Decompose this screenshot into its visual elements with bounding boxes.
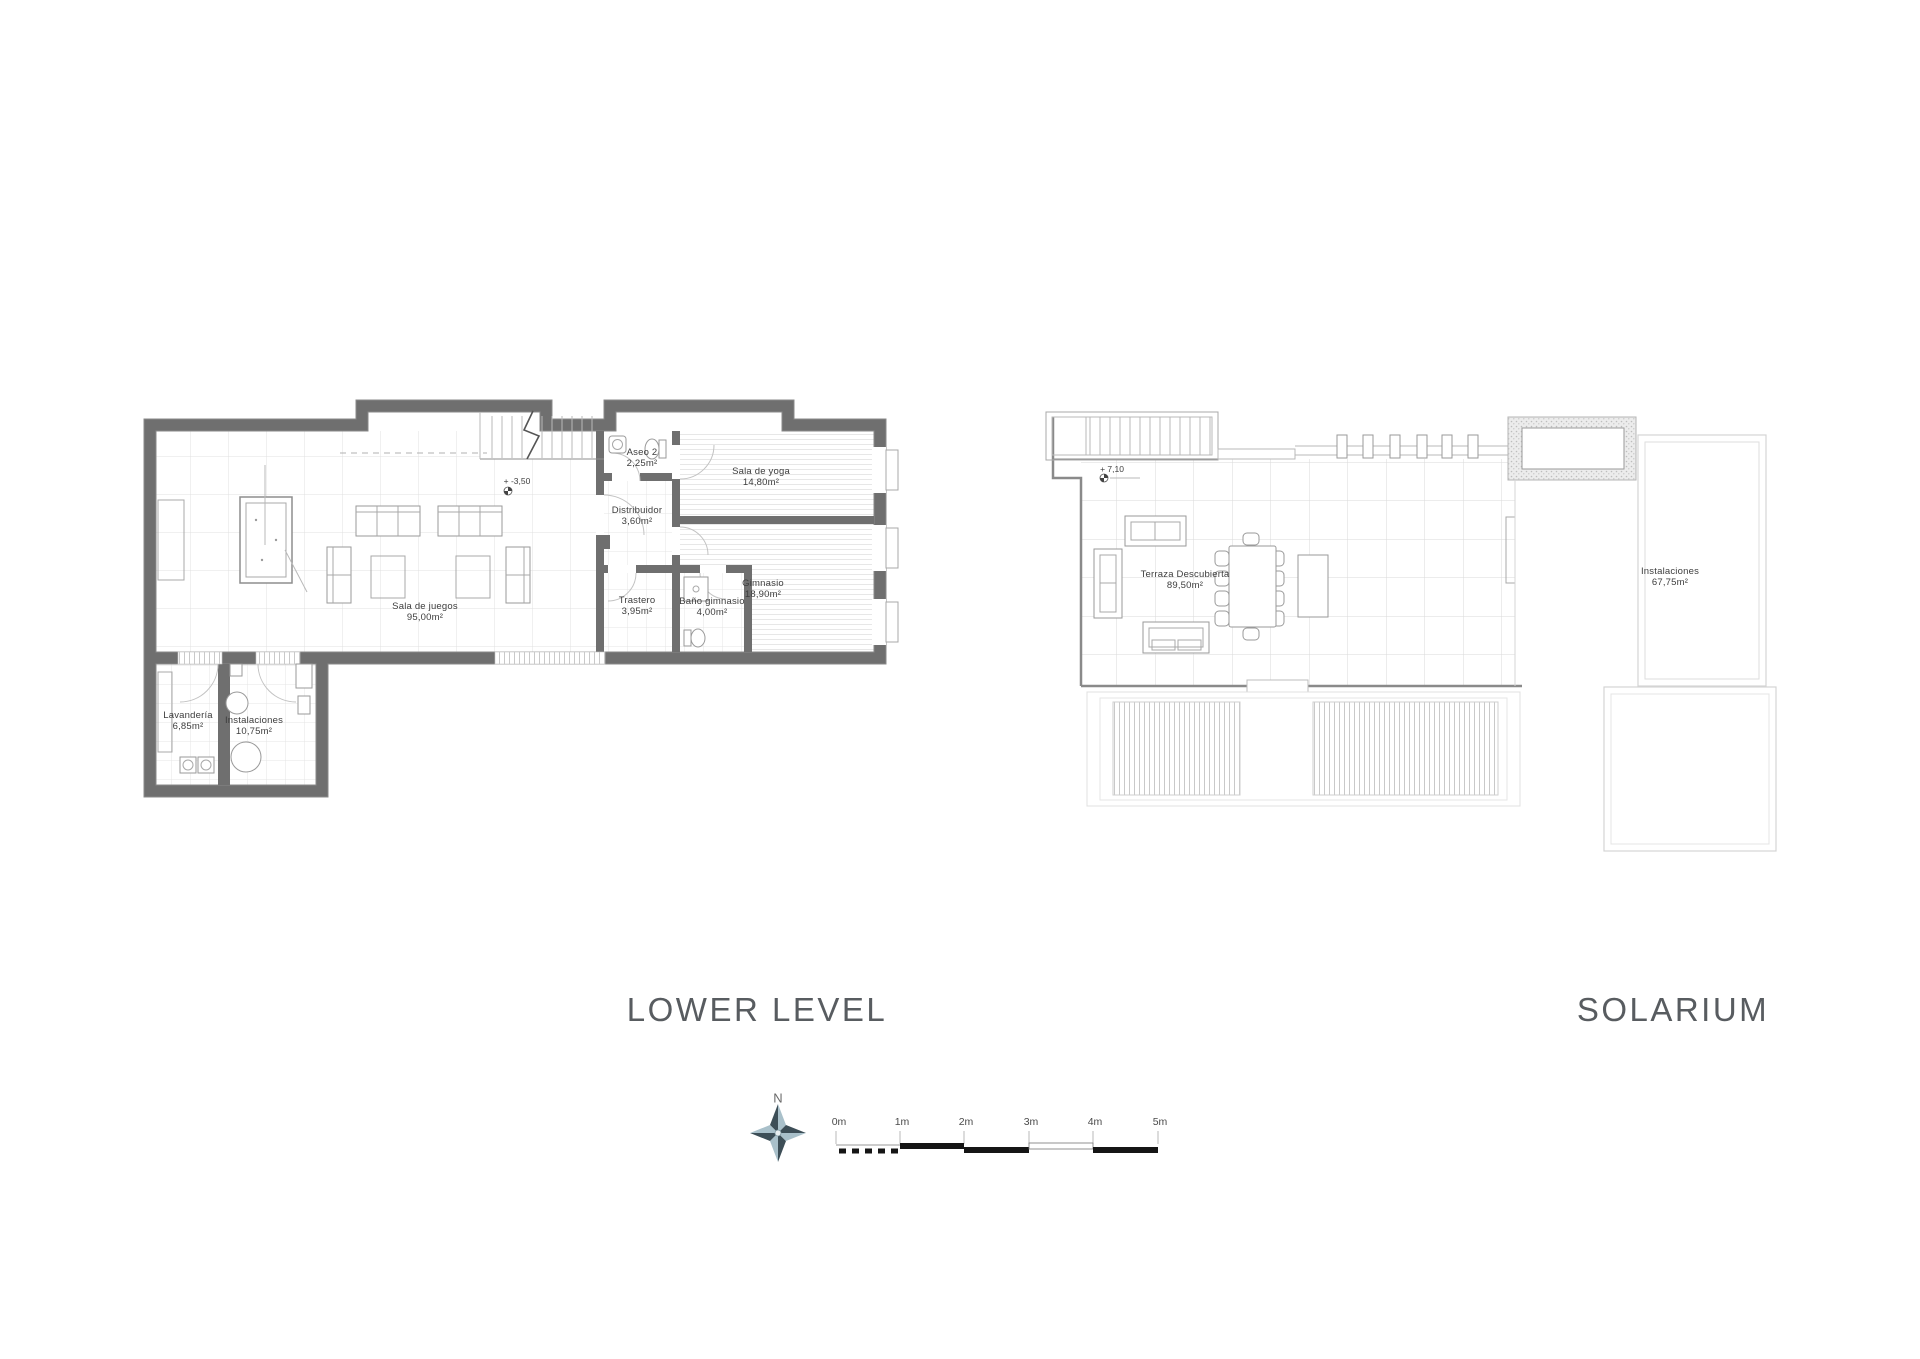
- room-label-instalaciones-lower: Instalaciones10,75m²: [225, 715, 283, 737]
- room-label-sala-de-juegos: Sala de juegos95,00m²: [392, 601, 458, 623]
- room-label-lavanderia: Lavandería6,85m²: [163, 710, 213, 732]
- floorplan-sheet: Aseo 22,25m² Sala de yoga14,80m² Distrib…: [0, 0, 1920, 1359]
- scale-tick-4m: 4m: [1088, 1116, 1103, 1128]
- lower-level-title: LOWER LEVEL: [627, 991, 887, 1029]
- room-label-bano-gimnasio: Baño gimnasio4,00m²: [679, 596, 744, 618]
- room-label-sala-de-yoga: Sala de yoga14,80m²: [732, 466, 790, 488]
- scale-tick-5m: 5m: [1153, 1116, 1168, 1128]
- scale-tick-2m: 2m: [959, 1116, 974, 1128]
- pergola-beams: [1218, 435, 1508, 459]
- room-label-terraza-descubierta: Terraza Descubierta89,50m²: [1141, 569, 1230, 591]
- staircase-solarium: [1046, 412, 1218, 460]
- north-label: N: [773, 1091, 782, 1106]
- solarium-title: SOLARIUM: [1577, 991, 1769, 1029]
- pool: [1508, 417, 1636, 480]
- scale-tick-0m: 0m: [832, 1116, 847, 1128]
- solarium-instalaciones-outline: [1604, 435, 1776, 851]
- scale-tick-1m: 1m: [895, 1116, 910, 1128]
- scale-bar-graphic: [836, 1131, 1158, 1153]
- level-marker-symbol-lower: [504, 487, 512, 495]
- lower-level-plan: [144, 400, 898, 797]
- solarium-plan: [1046, 412, 1776, 851]
- north-compass-icon: [750, 1104, 806, 1162]
- floorplan-linework: [0, 0, 1920, 1359]
- room-label-distribuidor: Distribuidor3,60m²: [612, 505, 662, 527]
- room-label-gimnasio: Gimnasio18,90m²: [742, 578, 784, 600]
- room-label-instalaciones-solarium: Instalaciones67,75m²: [1641, 566, 1699, 588]
- louvered-roofs: [1087, 692, 1520, 806]
- room-label-aseo-2: Aseo 22,25m²: [627, 447, 658, 469]
- level-marker-lower: + -3,50: [504, 476, 531, 486]
- scale-tick-3m: 3m: [1024, 1116, 1039, 1128]
- room-label-trastero: Trastero3,95m²: [619, 595, 656, 617]
- level-marker-solarium: + 7,10: [1100, 464, 1124, 474]
